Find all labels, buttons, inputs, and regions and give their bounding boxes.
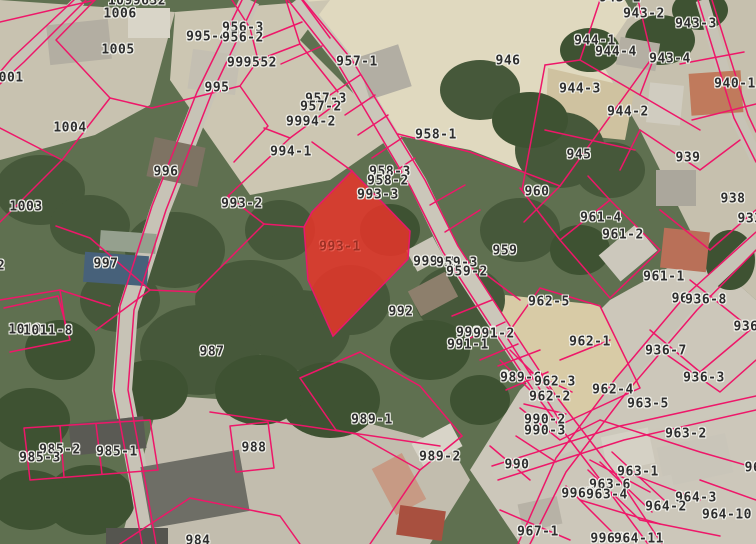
highlighted-parcel-label: 993-1 — [319, 241, 361, 254]
parcel-label: 963-2 — [665, 428, 707, 441]
parcel-label: 964-10 — [702, 509, 752, 522]
parcel-label: 987 — [200, 346, 225, 359]
parcel-label: 961-2 — [602, 229, 644, 242]
parcel-label: 936-7 — [645, 345, 687, 358]
parcel-label: 990-3 — [524, 425, 566, 438]
parcel-label: 993-3 — [357, 189, 399, 202]
parcel-label: 999552 — [227, 57, 277, 70]
parcel-label: 990 — [505, 459, 530, 472]
parcel-label: 936 — [734, 321, 756, 334]
parcel-label: 991-1 — [447, 339, 489, 352]
parcel-label: 995 — [205, 82, 230, 95]
parcel-label: 962-1 — [569, 336, 611, 349]
parcel-label: 940-1 — [714, 78, 756, 91]
parcel-label: 962-4 — [592, 384, 634, 397]
parcel-label: 989-1 — [351, 414, 393, 427]
parcel-label: 962-3 — [534, 376, 576, 389]
parcel-label: 994-1 — [270, 146, 312, 159]
parcel-label: 962-5 — [528, 296, 570, 309]
parcel-label: 959 — [493, 245, 518, 258]
parcel-label: 960 — [525, 186, 550, 199]
parcel-label: 956-2 — [222, 32, 264, 45]
parcel-label: 993-2 — [221, 198, 263, 211]
parcel-label: 933 — [738, 213, 756, 226]
parcel-label: 1004 — [53, 122, 86, 135]
parcel-label: 961-4 — [580, 212, 622, 225]
parcel-label: 964-2 — [645, 501, 687, 514]
parcel-label: 958-1 — [415, 129, 457, 142]
parcel-label: 943-2 — [623, 8, 665, 21]
parcel-label: 985-3 — [19, 452, 61, 465]
parcel-label: 963-4 — [586, 489, 628, 502]
parcel-label: 961-1 — [643, 271, 685, 284]
cadastral-map-view[interactable]: 1099632943-11006943-2943-3956-3995-4956-… — [0, 0, 756, 544]
parcel-label: 1005 — [101, 44, 134, 57]
parcel-label: 9994-2 — [286, 116, 336, 129]
parcel-label: 963-5 — [627, 398, 669, 411]
parcel-label: 2 — [0, 260, 5, 273]
parcel-label: 1001 — [0, 72, 24, 85]
parcel-label: 957-1 — [336, 56, 378, 69]
parcel-label: 996 — [154, 166, 179, 179]
parcel-label: 958-2 — [367, 175, 409, 188]
parcel-label: 989-2 — [419, 451, 461, 464]
parcel-label: 944-2 — [607, 106, 649, 119]
parcel-label: 984 — [186, 535, 211, 544]
parcel-label: 946 — [496, 55, 521, 68]
parcel-label: 944-4 — [595, 46, 637, 59]
parcel-label: 959-2 — [446, 266, 488, 279]
parcel-label: 964-11 — [614, 533, 664, 544]
parcel-label: 962-2 — [529, 391, 571, 404]
parcel-label: 943-4 — [649, 53, 691, 66]
parcel-label: 936-8 — [685, 294, 727, 307]
parcel-label: 943-1 — [599, 0, 641, 5]
parcel-label: 1011-8 — [23, 325, 73, 338]
parcel-label: 1006 — [103, 8, 136, 21]
parcel-label: 1003 — [9, 201, 42, 214]
parcel-labels-layer: 1099632943-11006943-2943-3956-3995-4956-… — [0, 0, 756, 544]
parcel-label: 988 — [242, 442, 267, 455]
parcel-label: 938 — [721, 193, 746, 206]
parcel-label: 997 — [94, 258, 119, 271]
parcel-label: 944-3 — [559, 83, 601, 96]
parcel-label: 939 — [676, 152, 701, 165]
parcel-label: 943-3 — [675, 18, 717, 31]
parcel-label: 936-3 — [683, 372, 725, 385]
parcel-label: 957-2 — [300, 101, 342, 114]
parcel-label: 985-1 — [96, 446, 138, 459]
parcel-label: 992 — [389, 306, 414, 319]
parcel-label: 967-1 — [517, 526, 559, 539]
parcel-label: 945 — [567, 149, 592, 162]
parcel-label: 96 — [745, 462, 756, 475]
